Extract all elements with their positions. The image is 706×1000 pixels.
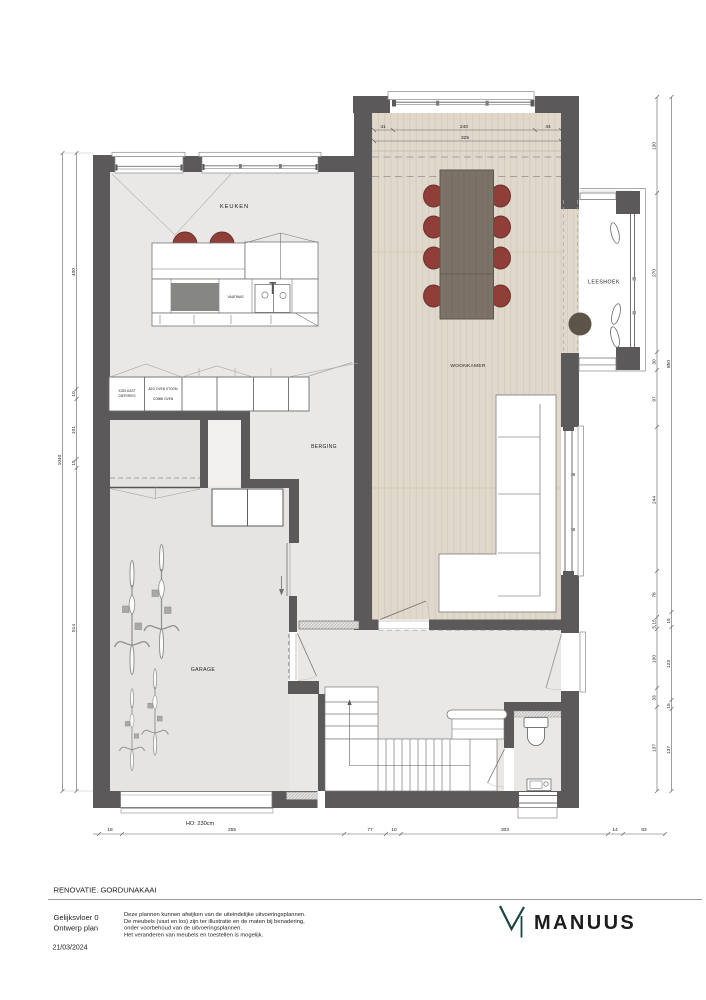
- svg-text:10: 10: [71, 391, 77, 397]
- svg-text:83: 83: [641, 827, 647, 833]
- svg-text:COMBI OVEN: COMBI OVEN: [153, 397, 174, 401]
- svg-text:41: 41: [380, 124, 386, 130]
- svg-text:44: 44: [545, 124, 551, 130]
- svg-text:WOONKAMER: WOONKAMER: [450, 363, 485, 369]
- svg-text:14: 14: [612, 827, 618, 833]
- svg-text:AEG OVEN STOOM: AEG OVEN STOOM: [148, 387, 178, 391]
- svg-text:514: 514: [71, 624, 77, 632]
- svg-text:DIEPVRIES: DIEPVRIES: [118, 394, 135, 398]
- svg-text:GARAGE: GARAGE: [191, 667, 216, 673]
- svg-text:MANUUS: MANUUS: [534, 912, 636, 934]
- svg-text:123: 123: [666, 660, 672, 668]
- svg-text:KEUKEN: KEUKEN: [220, 204, 249, 210]
- svg-text:33: 33: [652, 695, 658, 701]
- svg-text:1040: 1040: [57, 454, 63, 465]
- svg-text:onder voorbehoud van de uitvoe: onder voorbehoud van de uitvoeringsplann…: [124, 926, 242, 932]
- svg-text:303: 303: [501, 827, 509, 833]
- svg-text:325: 325: [461, 135, 469, 141]
- svg-text:5,15: 5,15: [652, 619, 658, 629]
- svg-text:Gelijksvloer 0: Gelijksvloer 0: [54, 913, 99, 922]
- svg-text:15: 15: [71, 460, 77, 466]
- svg-text:101: 101: [71, 426, 77, 434]
- svg-text:BERGING: BERGING: [311, 444, 337, 450]
- svg-text:30: 30: [652, 359, 658, 365]
- svg-text:130: 130: [652, 142, 658, 150]
- svg-text:270: 270: [652, 269, 658, 277]
- svg-text:240: 240: [460, 124, 468, 130]
- svg-text:Ontwerp plan: Ontwerp plan: [54, 924, 99, 933]
- svg-text:137: 137: [666, 746, 672, 754]
- svg-text:15: 15: [666, 703, 672, 709]
- svg-text:850: 850: [666, 360, 672, 368]
- svg-text:400: 400: [71, 268, 77, 276]
- svg-text:15: 15: [666, 618, 672, 624]
- svg-text:De meubels (vast en los) zijn: De meubels (vast en los) zijn ter illust…: [124, 919, 305, 925]
- svg-text:Het veranderen van meubels en: Het veranderen van meubels en toestellen…: [124, 932, 264, 938]
- svg-text:255: 255: [228, 827, 236, 833]
- svg-text:77: 77: [367, 827, 373, 833]
- svg-text:HO: 230cm: HO: 230cm: [186, 821, 215, 827]
- svg-text:137: 137: [652, 744, 658, 752]
- svg-text:18: 18: [107, 827, 113, 833]
- svg-text:78: 78: [652, 592, 658, 598]
- svg-text:21/03/2024: 21/03/2024: [53, 945, 88, 952]
- svg-text:VAATWAS: VAATWAS: [228, 295, 245, 299]
- svg-text:100: 100: [652, 655, 658, 663]
- svg-text:RENOVATIE. GORDUNAKAAI: RENOVATIE. GORDUNAKAAI: [54, 886, 157, 895]
- svg-text:97: 97: [652, 396, 658, 402]
- svg-text:LEESHOEK: LEESHOEK: [588, 280, 620, 286]
- svg-text:10: 10: [391, 827, 397, 833]
- svg-text:KOELKAST: KOELKAST: [119, 389, 136, 393]
- svg-text:Deze plannen kunnen afwijken v: Deze plannen kunnen afwijken van de uite…: [124, 912, 306, 918]
- svg-text:244: 244: [652, 496, 658, 504]
